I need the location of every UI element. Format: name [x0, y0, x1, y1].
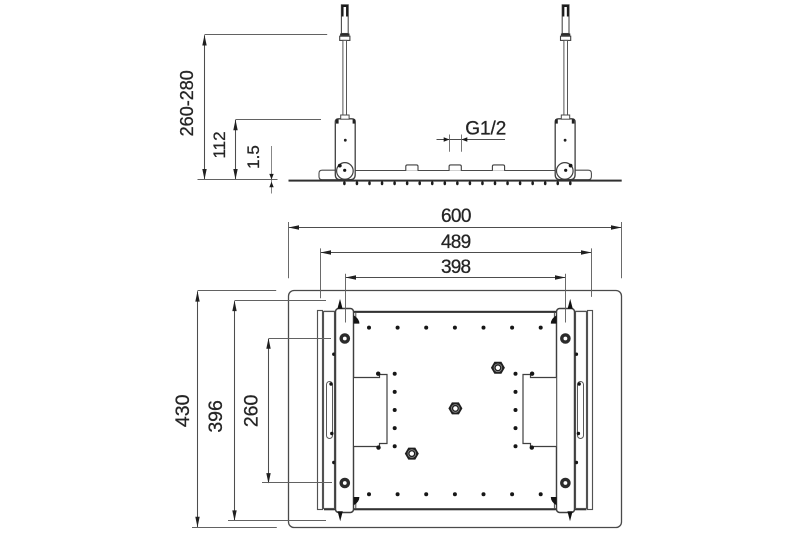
svg-text:260: 260 [241, 394, 263, 427]
svg-text:489: 489 [441, 232, 471, 253]
svg-text:430: 430 [172, 394, 194, 427]
svg-text:260-280: 260-280 [177, 70, 197, 136]
svg-text:398: 398 [441, 257, 471, 278]
svg-text:G1/2: G1/2 [465, 119, 506, 140]
svg-text:112: 112 [210, 131, 229, 158]
svg-text:600: 600 [441, 206, 471, 227]
svg-text:396: 396 [205, 400, 227, 433]
svg-text:1.5: 1.5 [244, 145, 263, 169]
